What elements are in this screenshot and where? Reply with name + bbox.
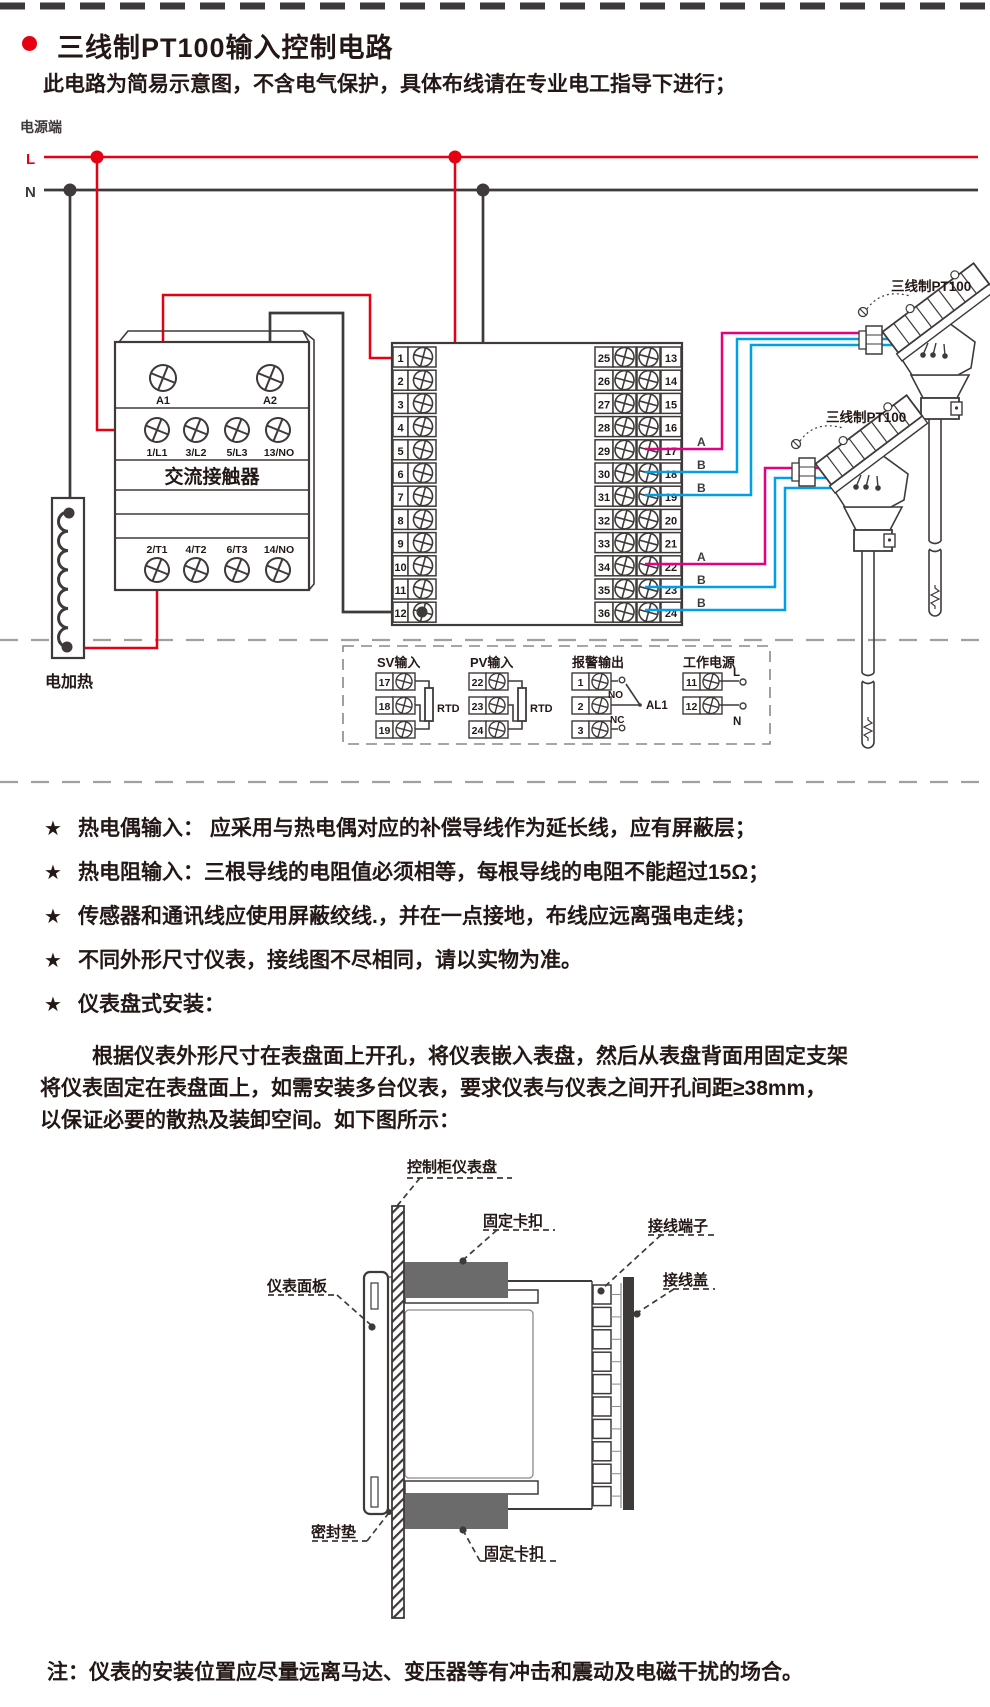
page-title: 三线制PT100输入控制电路 — [57, 26, 394, 65]
terminal-number: 19 — [379, 725, 391, 737]
contactor-terminal-label: 6/T3 — [226, 544, 247, 556]
manual-page: 电源端 L N 电加热 — [0, 0, 990, 1707]
note-item: ★热电阻输入：三根导线的电阻值必须相等，每根导线的电阻不能超过15Ω； — [44, 856, 974, 886]
note-text: 热电偶输入： 应采用与热电偶对应的补偿导线作为延长线，应有屏蔽层； — [78, 817, 756, 840]
rtd-label: RTD — [530, 703, 553, 715]
terminal-number: 2 — [397, 376, 403, 388]
power-l-label: L — [733, 667, 740, 679]
line-n-label: N — [25, 184, 36, 201]
note-text: 热电阻输入：三根导线的电阻值必须相等，每根导线的电阻不能超过15Ω； — [78, 861, 769, 884]
install-label-cover: 接线盖 — [663, 1271, 708, 1289]
terminal-number: 36 — [598, 608, 610, 620]
pv-rtd — [508, 681, 526, 729]
electric-heater: 电加热 — [45, 498, 93, 691]
terminal-number: 22 — [472, 677, 484, 689]
terminal-number: 32 — [598, 515, 610, 527]
sv-rtd — [415, 681, 433, 729]
fixing-clip-bottom — [403, 1494, 508, 1529]
terminal-number: 29 — [598, 446, 610, 458]
note-item: ★不同外形尺寸仪表，接线图不尽相同，请以实物为准。 — [44, 944, 974, 974]
terminal-number: 30 — [598, 469, 610, 481]
contactor-terminal-label: 3/L2 — [185, 447, 206, 459]
terminal-number: 23 — [472, 701, 484, 713]
terminal-number: 8 — [397, 515, 403, 527]
terminal-number: 10 — [394, 562, 406, 574]
install-paragraph-line: 将仪表固定在表盘面上，如需安装多台仪表，要求仪表与仪表之间开孔间距≥38mm， — [40, 1072, 970, 1102]
note-item: ★热电偶输入： 应采用与热电偶对应的补偿导线作为延长线，应有屏蔽层； — [44, 812, 974, 842]
terminal-number: 6 — [397, 469, 403, 481]
contactor-terminal-label: 5/L3 — [226, 447, 247, 459]
terminal-number: 1 — [578, 677, 584, 689]
wire-label: B — [697, 481, 706, 495]
install-paragraph-line: 根据仪表外形尺寸在表盘面上开孔，将仪表嵌入表盘，然后从表盘背面用固定支架 — [40, 1040, 990, 1070]
star-bullet-icon: ★ — [44, 860, 78, 885]
terminal-number: 31 — [598, 492, 610, 504]
terminal-number: 12 — [686, 701, 698, 713]
note-text: 仪表盘式安装： — [78, 993, 225, 1016]
cabinet-panel — [392, 1206, 404, 1618]
io-terminal-box: SV输入 PV输入 报警输出 工作电源 1718192223241231112 … — [343, 646, 770, 744]
io-group-title: SV输入 — [377, 655, 420, 670]
install-label-gasket: 密封垫 — [311, 1523, 356, 1541]
note-item: ★传感器和通讯线应使用屏蔽绞线.，并在一点接地，布线应远离强电走线； — [44, 900, 974, 930]
ac-contactor: A1 A2 1/L1 3/L2 5/L3 13/NO 交流接触器 2/T1 4/… — [115, 331, 314, 590]
wire-label: A — [697, 550, 706, 564]
install-label-clip-top: 固定卡扣 — [483, 1212, 543, 1230]
terminal-number: 15 — [665, 399, 677, 411]
contactor-terminal-label: A1 — [156, 395, 170, 407]
contactor-terminal-label: 14/NO — [264, 544, 294, 556]
rear-terminal-strip — [593, 1285, 621, 1506]
install-label-front: 仪表面板 — [266, 1277, 328, 1295]
io-group-title: 工作电源 — [683, 655, 735, 670]
install-label-panel: 控制柜仪表盘 — [407, 1158, 497, 1176]
terminal-number: 35 — [598, 585, 610, 597]
star-bullet-icon: ★ — [44, 948, 78, 973]
alarm-no-label: NO — [608, 690, 623, 701]
terminal-number: 25 — [598, 353, 610, 365]
terminal-number: 2 — [578, 701, 584, 713]
star-bullet-icon: ★ — [44, 992, 78, 1017]
note-text: 不同外形尺寸仪表，接线图不尽相同，请以实物为准。 — [78, 949, 582, 972]
contactor-name: 交流接触器 — [164, 465, 260, 488]
alarm-nc-label: NC — [610, 715, 624, 726]
install-label-terminal: 接线端子 — [648, 1217, 708, 1235]
section-bullet-icon — [22, 36, 37, 51]
fixing-clip-top — [403, 1262, 508, 1298]
power-terminal-label: 电源端 — [20, 119, 62, 135]
terminal-number: 11 — [395, 585, 407, 597]
installation-diagram: 控制柜仪表盘 固定卡扣 接线端子 接线盖 仪表面板 密封垫 固定卡扣 — [266, 1158, 718, 1618]
terminal-number: 27 — [598, 399, 610, 411]
terminal-number: 17 — [665, 446, 677, 458]
wire-label: B — [697, 458, 706, 472]
working-power — [719, 679, 746, 709]
io-group-title: PV输入 — [470, 655, 513, 670]
terminal-number: 16 — [665, 423, 677, 435]
star-bullet-icon: ★ — [44, 816, 78, 841]
terminal-number: 34 — [598, 562, 611, 574]
case-cutout — [405, 1310, 533, 1478]
terminal-number: 33 — [598, 539, 610, 551]
terminal-number: 3 — [578, 725, 584, 737]
contactor-terminal-label: 1/L1 — [146, 447, 167, 459]
alarm-name-label: AL1 — [646, 700, 668, 712]
terminal-number: 28 — [598, 423, 610, 435]
terminal-number: 7 — [397, 492, 403, 504]
bottom-note: 注：仪表的安装位置应尽量远离马达、变压器等有冲击和震动及电磁干扰的场合。 — [47, 1656, 977, 1686]
contactor-terminal-label: 4/T2 — [185, 544, 206, 556]
rtd-label: RTD — [437, 703, 460, 715]
power-n-label: N — [733, 716, 741, 728]
star-bullet-icon: ★ — [44, 904, 78, 929]
terminal-number: 24 — [472, 725, 484, 737]
contactor-terminal-label: 2/T1 — [146, 544, 167, 556]
terminal-number: 13 — [665, 353, 677, 365]
terminal-number: 4 — [397, 423, 404, 435]
power-rails: 电源端 L N — [20, 119, 978, 201]
rtd-element-icon — [931, 585, 939, 609]
contactor-terminal-label: A2 — [263, 395, 277, 407]
pt100-sensor — [792, 390, 928, 748]
wire-label: B — [697, 573, 706, 587]
contactor-terminal-label: 13/NO — [264, 447, 294, 459]
sensor-label: 三线制PT100 — [891, 278, 971, 294]
page-subtitle: 此电路为简易示意图，不含电气保护，具体布线请在专业电工指导下进行； — [43, 68, 736, 98]
terminal-number: 1 — [397, 353, 403, 365]
wiring-and-install-diagram: 电源端 L N 电加热 — [0, 0, 990, 1707]
terminal-number: 14 — [665, 376, 678, 388]
line-l-label: L — [26, 151, 35, 168]
instrument-rear-view: 123456789101112 251326142715281629173018… — [392, 343, 682, 625]
wire-label: B — [697, 596, 706, 610]
install-paragraph-line: 以保证必要的散热及装卸空间。如下图所示： — [40, 1104, 970, 1134]
wire-label: A — [697, 435, 706, 449]
terminal-number: 9 — [397, 539, 403, 551]
note-text: 传感器和通讯线应使用屏蔽绞线.，并在一点接地，布线应远离强电走线； — [78, 905, 756, 928]
terminal-number: 11 — [686, 677, 697, 689]
terminal-number: 26 — [598, 376, 610, 388]
heater-label: 电加热 — [45, 672, 93, 691]
terminal-number: 5 — [397, 446, 403, 458]
note-item: ★仪表盘式安装： — [44, 988, 974, 1018]
terminal-number: 18 — [379, 701, 391, 713]
terminal-number: 12 — [394, 608, 406, 620]
io-group-title: 报警输出 — [572, 655, 624, 670]
sensor-label: 三线制PT100 — [826, 409, 906, 425]
wire-letter-labels: A B B A B B — [697, 435, 706, 610]
terminal-number: 20 — [665, 515, 677, 527]
terminal-number: 17 — [379, 677, 391, 689]
terminal-number: 3 — [397, 399, 403, 411]
terminal-number: 21 — [665, 539, 677, 551]
install-label-clip-bottom: 固定卡扣 — [484, 1544, 544, 1562]
terminal-cover — [623, 1277, 634, 1510]
